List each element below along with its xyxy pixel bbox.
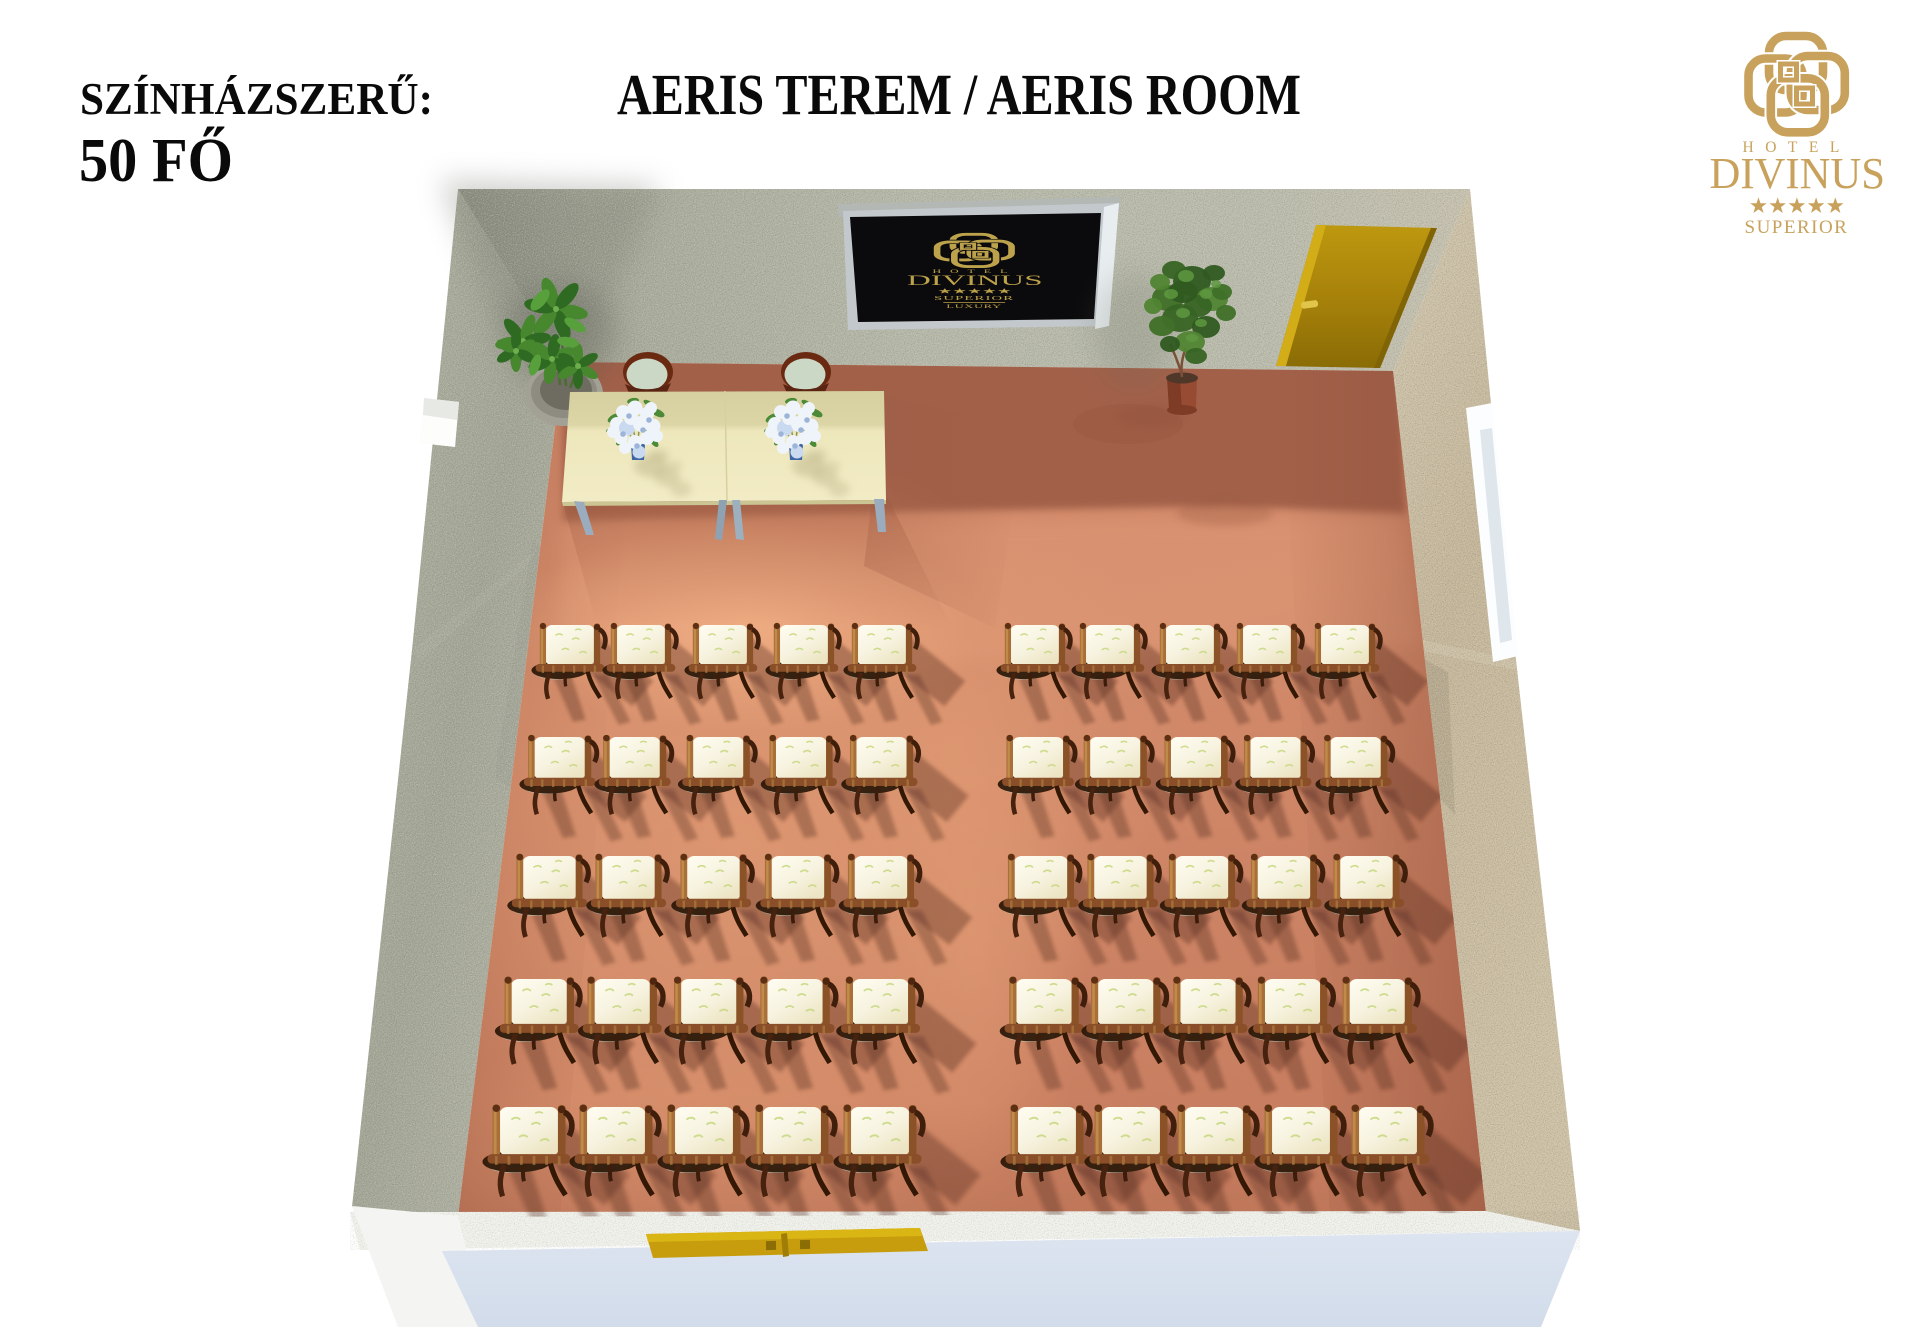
svg-text:SUPERIOR: SUPERIOR — [934, 295, 1014, 302]
svg-text:SUPERIOR: SUPERIOR — [1745, 217, 1849, 238]
svg-text:AERIS TEREM / AERIS ROOM: AERIS TEREM / AERIS ROOM — [617, 62, 1301, 127]
svg-text:DIVINUS: DIVINUS — [1710, 148, 1886, 198]
svg-text:LUXURY: LUXURY — [946, 304, 1001, 310]
svg-text:50 FŐ: 50 FŐ — [79, 127, 233, 195]
svg-text:DIVINUS: DIVINUS — [907, 272, 1043, 289]
svg-text:SZÍNHÁZSZERŰ:: SZÍNHÁZSZERŰ: — [80, 74, 433, 124]
